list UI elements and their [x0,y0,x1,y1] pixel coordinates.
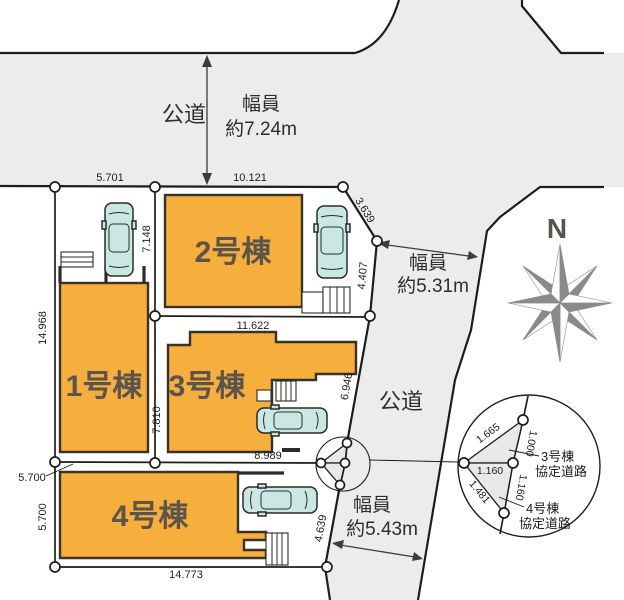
building-4-label: 4号棟 [112,500,190,533]
dim-top-left: 5.701 [96,172,124,184]
dim-lot3-top: 11.622 [237,320,270,332]
dim-top-right: 10.121 [233,172,267,184]
road-edge-top [0,0,399,53]
east-road-lower-width-1: 幅員 [353,494,391,516]
survey-point [459,458,469,468]
survey-point [50,562,60,572]
top-road-width-2: 約7.24m [225,118,297,140]
survey-point [372,236,382,246]
survey-point [365,311,375,321]
dim-lot4-left: 5.700 [37,503,49,531]
building-2-label: 2号棟 [195,236,273,269]
survey-point [317,459,326,468]
compass-point-s [560,303,569,362]
compass-point-s [551,303,560,362]
building3-step [257,390,271,401]
car-lot1 [102,203,136,276]
survey-point [150,311,160,321]
dim-east-upper: 4.407 [356,262,370,290]
top-road-width-1: 幅員 [242,93,280,115]
dim-bottom: 14.773 [169,569,203,581]
survey-point [499,508,509,518]
survey-point [150,182,160,192]
survey-point [336,481,345,490]
inset-label-4a: 4号棟 [526,501,559,516]
top-road-label: 公道 [162,102,206,127]
inset-label-3a: 3号棟 [541,449,574,464]
site-plan: 1号棟 2号棟 3号棟 4号棟 [0,0,624,600]
compass-north-label: N [547,213,567,244]
compass-rose: N [508,213,612,362]
building1-porch [61,252,93,267]
inset-dim-mid: 1.160 [477,465,503,477]
survey-point [150,458,160,468]
building-3-label: 3号棟 [169,370,247,403]
survey-point [341,459,350,468]
survey-point [322,562,332,572]
survey-point [338,182,348,192]
building2-porch [302,292,323,313]
dim-east-mid: 6.946 [339,372,356,401]
survey-point [50,457,60,467]
detail-inset: 1.665 1.000 1.160 1.160 1.481 3号棟 協定道路 4… [458,395,600,537]
survey-point [343,439,352,448]
dim-west: 14.968 [37,311,49,345]
compass-point-n [551,244,560,303]
inset-label-3b: 協定道路 [535,464,587,479]
compass-point-e [560,294,612,303]
compass-point-w [508,294,560,303]
survey-point [518,415,528,425]
lot2-lot3-divider [155,316,370,317]
east-road-upper-width-1: 幅員 [409,252,447,274]
compass-point-n [560,244,569,303]
inset-label-4b: 協定道路 [519,516,571,531]
car-lot4 [243,484,317,516]
site-plan-canvas: 1号棟 2号棟 3号棟 4号棟 [0,0,624,600]
east-road-upper-width-2: 約5.31m [397,275,469,297]
east-road-lower-width-2: 約5.43m [346,518,418,540]
car-lot2 [314,206,350,278]
compass-point-w [508,303,560,312]
gate-bar [282,448,300,452]
lot4-top-boundary [55,462,321,463]
survey-point [50,182,60,192]
east-road-label: 公道 [379,389,423,414]
building-1 [60,283,148,452]
dim-inner-east: 8.989 [254,450,282,462]
dim-lot2-left: 7.148 [141,225,153,253]
dim-lot4-top: 5.700 [18,472,46,484]
survey-point [508,458,518,468]
car-lot3 [257,405,327,436]
dim-east-lower: 4.639 [313,514,330,543]
dim-lot3-left: 7.810 [151,406,163,434]
building-1-label: 1号棟 [66,370,144,403]
